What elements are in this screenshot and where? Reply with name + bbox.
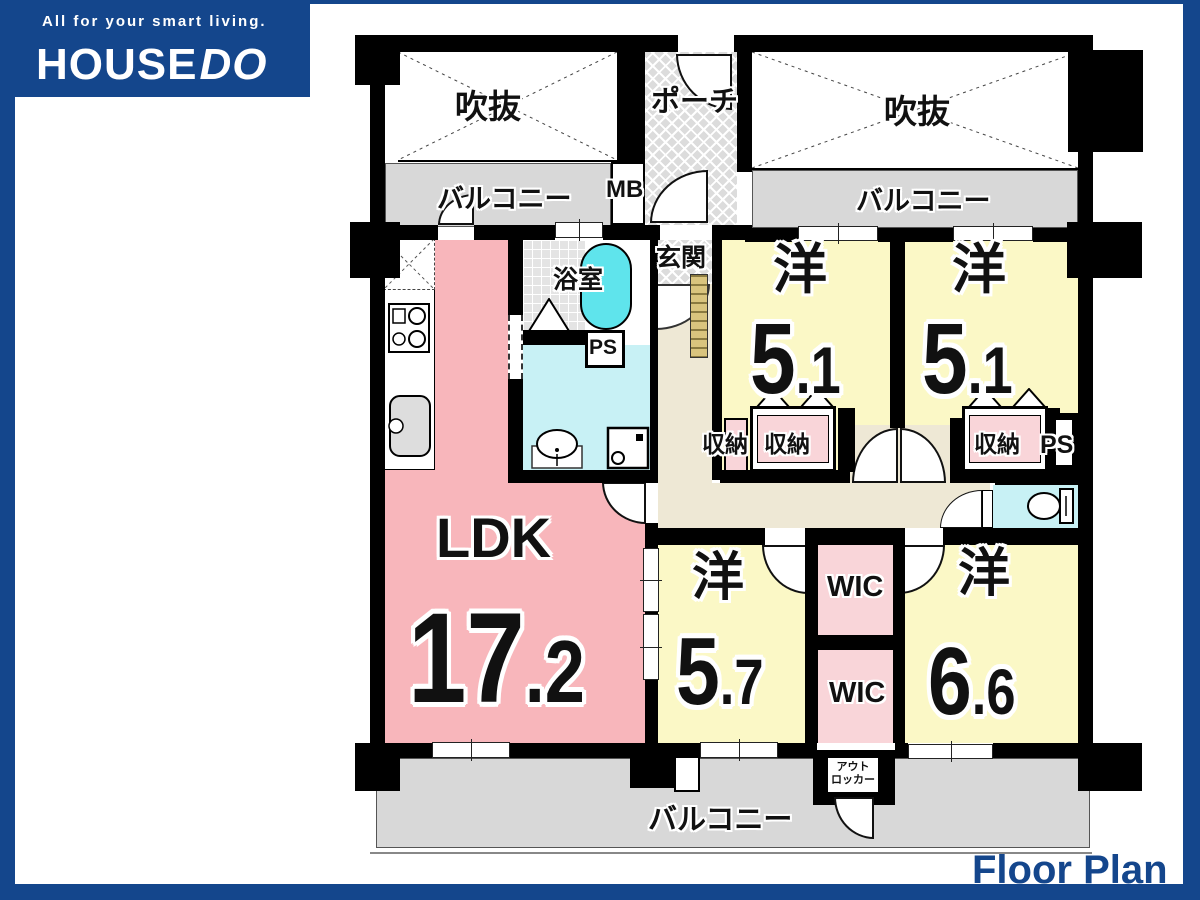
bedroom2-size-int: 5 <box>922 302 968 417</box>
bedroom4-size: 6.6 <box>928 627 1016 737</box>
wall <box>838 408 855 472</box>
wic-upper-label: WIC <box>827 573 883 602</box>
pillar <box>1068 50 1143 152</box>
kitchen-washroom-opening <box>508 315 523 379</box>
bedroom3-size: 5.7 <box>676 617 764 727</box>
entrance-label: 玄関 <box>656 246 706 271</box>
closet-2-label: 収納 <box>974 433 1020 456</box>
wall <box>818 635 893 650</box>
toilet-door-leaf <box>982 490 993 528</box>
bedroom1-size-int: 5 <box>750 302 796 417</box>
wall <box>734 35 1090 52</box>
balcony-access-door <box>674 756 700 792</box>
ldk-size-int: 17 <box>408 585 525 732</box>
closet-1b-label: 収納 <box>764 433 810 456</box>
void-right-label: 吹抜 <box>884 95 950 128</box>
wall <box>603 225 660 240</box>
wall <box>1033 228 1078 242</box>
bedroom2-size: 5.1 <box>922 302 1013 417</box>
ldk-sliding-door <box>643 548 659 612</box>
out-locker-label: アウトロッカー <box>826 761 880 787</box>
logo-box: All for your smart living. HOUSEDO <box>0 0 310 97</box>
wic-lower-label: WIC <box>829 679 885 708</box>
bedroom1-size: 5.1 <box>750 302 841 417</box>
stove-icon <box>388 303 430 353</box>
bedroom4-size-dec: .6 <box>972 655 1016 729</box>
ldk-sliding-door <box>643 614 659 680</box>
wall <box>645 680 658 743</box>
porch-label: ポーチ <box>651 88 738 117</box>
bedroom4-size-int: 6 <box>928 627 972 737</box>
bath-label: 浴室 <box>553 268 603 293</box>
wall <box>474 225 555 240</box>
window <box>798 226 878 241</box>
wall <box>508 470 658 483</box>
balcony-top-left-label: バルコニー <box>437 186 571 213</box>
toilet-icon <box>1024 486 1076 526</box>
balcony-bottom-label: バルコニー <box>648 806 792 835</box>
void-right-line <box>752 168 1078 170</box>
wall <box>890 240 905 428</box>
bedroom1-name: 洋 <box>773 243 827 297</box>
ps-left-label: PS <box>589 337 617 358</box>
frame-left <box>0 0 15 900</box>
pillar <box>1067 222 1142 278</box>
window <box>953 226 1033 241</box>
bedroom3-size-dec: .7 <box>720 645 764 719</box>
sink-icon <box>386 394 432 458</box>
wall <box>737 35 752 172</box>
void-left-label: 吹抜 <box>455 90 521 123</box>
wall <box>508 240 523 315</box>
frame-right <box>1183 0 1200 900</box>
ldk-size-dec: .2 <box>525 621 585 723</box>
bedroom2-size-dec: .1 <box>968 332 1013 408</box>
wall <box>645 528 765 545</box>
window <box>908 744 993 759</box>
wall <box>645 470 658 483</box>
bedroom3-name: 洋 <box>692 552 744 604</box>
bedroom4-name: 洋 <box>958 548 1010 600</box>
shoe-cabinet <box>690 274 708 358</box>
window <box>432 742 510 758</box>
kitchen-floor <box>435 240 508 470</box>
wall <box>370 225 438 240</box>
floor-plan-page: アウトロッカー 吹抜 吹抜 ポーチ バルコニー バルコニー バルコニー MB 浴… <box>0 0 1200 900</box>
wall <box>895 743 908 758</box>
brand-tagline: All for your smart living. <box>42 13 267 30</box>
bathroom-window <box>555 222 603 238</box>
wall <box>778 743 817 758</box>
bedroom2-name: 洋 <box>952 243 1006 297</box>
closet-1a-label: 収納 <box>702 433 748 456</box>
wall <box>508 379 523 478</box>
pillar <box>355 35 400 85</box>
bath-folding-door-icon <box>528 298 570 332</box>
bedroom3-size-int: 5 <box>676 617 720 727</box>
wall <box>357 743 432 758</box>
pillar <box>1078 743 1142 791</box>
washing-machine-icon <box>606 426 650 470</box>
basin-icon <box>530 426 584 470</box>
bedroom1-size-dec: .1 <box>796 332 841 408</box>
brand-logo: HOUSEDO <box>36 40 267 90</box>
balcony-top-right-label: バルコニー <box>856 188 990 215</box>
wall <box>995 470 1078 485</box>
mb-label: MB <box>606 178 643 202</box>
wall <box>523 330 585 345</box>
wall <box>617 35 645 162</box>
wall <box>650 240 658 483</box>
wall <box>943 528 1090 545</box>
floor-plan-title: Floor Plan <box>972 848 1168 893</box>
brand-logo-do: DO <box>199 40 267 89</box>
ps-right-label: PS <box>1040 433 1073 458</box>
ldk-size: 17.2 <box>408 585 585 732</box>
brand-logo-house: HOUSE <box>36 40 197 89</box>
wall <box>370 35 385 758</box>
wall <box>805 528 818 743</box>
ldk-name: LDK <box>436 510 551 566</box>
wall <box>993 743 1078 758</box>
wall <box>808 528 900 545</box>
void-left-line <box>398 160 617 162</box>
wall <box>893 528 905 743</box>
wall <box>645 523 658 550</box>
wall <box>630 756 676 788</box>
window <box>700 742 778 758</box>
